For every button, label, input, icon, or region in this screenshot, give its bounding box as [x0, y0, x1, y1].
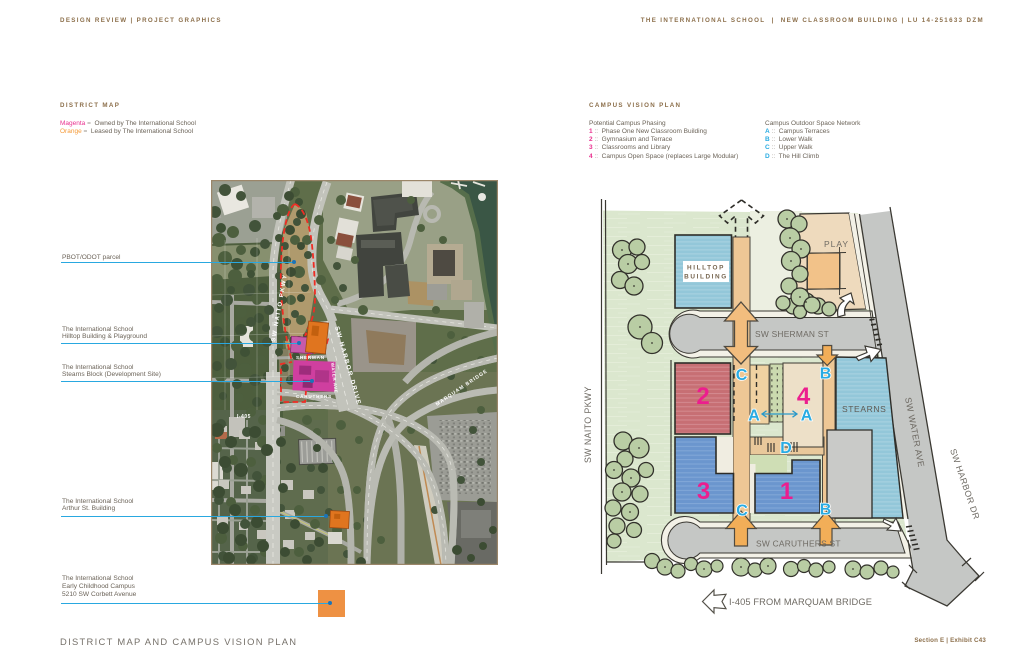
svg-text:SHERMAN: SHERMAN: [296, 355, 325, 360]
svg-text:SW CARUTHERS ST: SW CARUTHERS ST: [756, 539, 841, 549]
svg-text:A: A: [748, 408, 760, 425]
svg-text:SW NAITO PKWY: SW NAITO PKWY: [583, 386, 593, 463]
svg-text:A: A: [801, 408, 813, 425]
svg-text:C: C: [736, 367, 748, 384]
svg-text:I-405: I-405: [237, 414, 251, 420]
svg-text:1: 1: [780, 478, 793, 505]
svg-text:BUILDING: BUILDING: [684, 274, 728, 281]
svg-text:I-405 FROM MARQUAM BRIDGE: I-405 FROM MARQUAM BRIDGE: [729, 597, 872, 607]
svg-text:3: 3: [697, 478, 710, 505]
svg-text:PLAY: PLAY: [824, 239, 849, 249]
svg-text:HILLTOP: HILLTOP: [687, 265, 725, 272]
svg-text:4: 4: [797, 383, 811, 410]
svg-text:B: B: [820, 502, 832, 519]
svg-text:2: 2: [696, 383, 709, 410]
svg-text:D: D: [780, 440, 792, 457]
svg-text:STEARNS: STEARNS: [842, 404, 886, 414]
svg-text:SW SHERMAN ST: SW SHERMAN ST: [755, 329, 829, 339]
svg-text:B: B: [820, 366, 832, 383]
svg-text:CARUTHERS: CARUTHERS: [296, 394, 332, 399]
svg-text:SW HARBOR DR: SW HARBOR DR: [948, 447, 982, 520]
svg-text:C: C: [736, 503, 748, 520]
